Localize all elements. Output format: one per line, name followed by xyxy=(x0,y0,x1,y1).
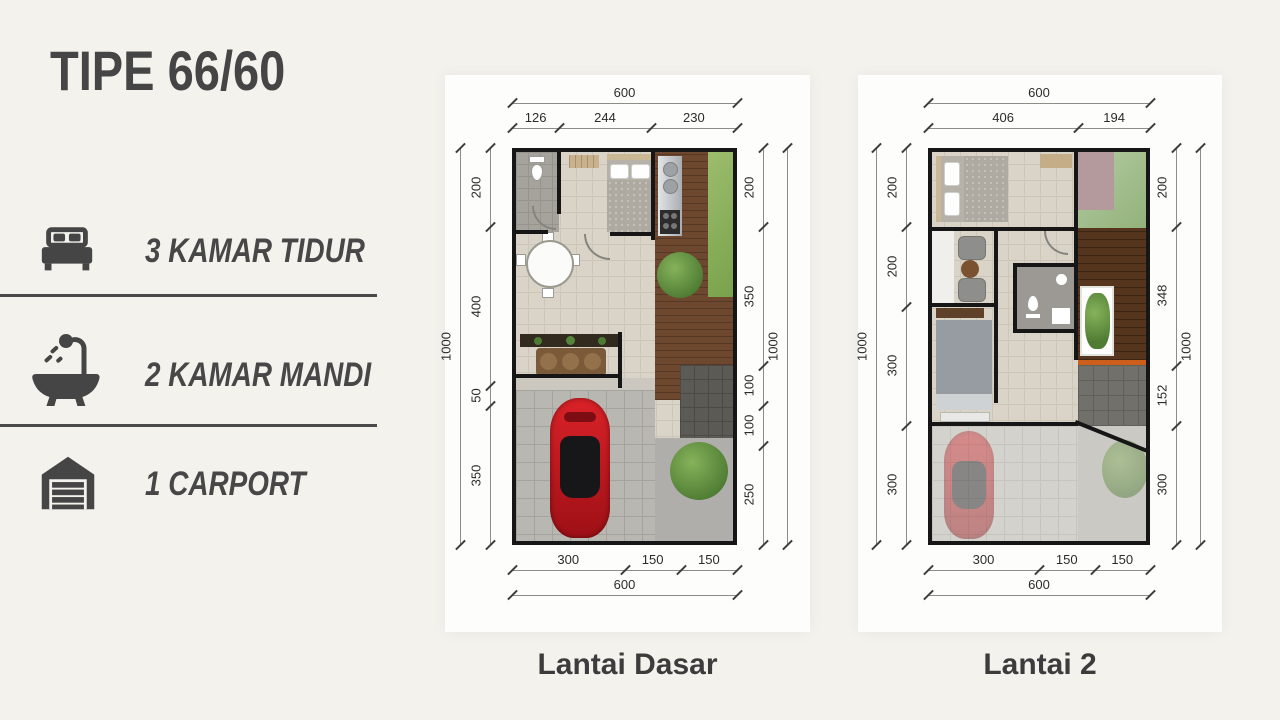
dimension-line xyxy=(876,148,877,545)
feature-bedrooms: 3 KAMAR TIDUR xyxy=(0,216,400,286)
dimension-label: 200 xyxy=(884,237,901,297)
dimension-line xyxy=(512,128,737,129)
dimension-label: 150 xyxy=(679,551,739,568)
dimension-label: 244 xyxy=(575,109,635,126)
dimension-label: 230 xyxy=(664,109,724,126)
outer-wall xyxy=(928,148,1150,545)
dimension-label: 300 xyxy=(884,336,901,396)
dimension-label: 300 xyxy=(884,455,901,515)
divider xyxy=(0,424,377,427)
dimension-label: 126 xyxy=(506,109,566,126)
dimension-line xyxy=(490,148,491,545)
dimension-label: 1000 xyxy=(854,316,871,376)
feature-bedrooms-label: 3 KAMAR TIDUR xyxy=(145,216,365,286)
dimension-label: 1000 xyxy=(765,316,782,376)
floor-plan-card-upper: 6004061941000200200300300200348152300100… xyxy=(858,75,1222,632)
dimension-line xyxy=(512,595,737,596)
dimension-label: 400 xyxy=(468,276,485,336)
dimension-label: 200 xyxy=(884,157,901,217)
dimension-label: 300 xyxy=(1154,455,1171,515)
dimension-label: 150 xyxy=(1092,551,1152,568)
bathtub-icon xyxy=(26,328,108,414)
floor-plan-card-ground: 6001262442301000200400503502003501001002… xyxy=(445,75,810,632)
floor-plan-drawing-upper xyxy=(928,148,1150,545)
feature-bathrooms-label: 2 KAMAR MANDI xyxy=(145,336,371,414)
floor-plan-drawing-ground xyxy=(512,148,737,545)
dimension-label: 600 xyxy=(595,576,655,593)
dimension-line xyxy=(787,148,788,545)
divider xyxy=(0,294,377,297)
dimension-label: 150 xyxy=(623,551,683,568)
dimension-label: 600 xyxy=(1009,576,1069,593)
dimension-label: 152 xyxy=(1154,365,1171,425)
dimension-label: 350 xyxy=(741,266,758,326)
dimension-line xyxy=(928,103,1150,104)
dimension-label: 348 xyxy=(1154,266,1171,326)
dimension-line xyxy=(928,595,1150,596)
dimension-label: 300 xyxy=(954,551,1014,568)
dimension-line xyxy=(512,103,737,104)
dimension-label: 1000 xyxy=(438,316,455,376)
dimension-line xyxy=(460,148,461,545)
dimension-label: 250 xyxy=(741,465,758,525)
dimension-label: 200 xyxy=(741,157,758,217)
dimension-label: 200 xyxy=(468,157,485,217)
dimension-label: 1000 xyxy=(1178,316,1195,376)
feature-carport-label: 1 CARPORT xyxy=(145,448,306,520)
feature-bathrooms: 2 KAMAR MANDI xyxy=(0,336,400,414)
dimension-label: 100 xyxy=(741,395,758,455)
dimension-label: 600 xyxy=(1009,84,1069,101)
outer-wall xyxy=(512,148,737,545)
dimension-label: 406 xyxy=(973,109,1033,126)
dimension-label: 194 xyxy=(1084,109,1144,126)
dimension-label: 200 xyxy=(1154,157,1171,217)
dimension-line xyxy=(1200,148,1201,545)
dimension-label: 50 xyxy=(468,366,485,426)
dimension-label: 350 xyxy=(468,445,485,505)
page-title: TIPE 66/60 xyxy=(50,38,285,103)
dimension-label: 600 xyxy=(595,84,655,101)
plan-label-upper: Lantai 2 xyxy=(858,648,1222,682)
feature-carport: 1 CARPORT xyxy=(0,448,400,520)
dimension-line xyxy=(928,128,1150,129)
plan-label-ground: Lantai Dasar xyxy=(445,648,810,682)
dimension-line xyxy=(906,148,907,545)
bed-icon xyxy=(36,226,98,276)
dimension-label: 150 xyxy=(1037,551,1097,568)
garage-icon xyxy=(38,452,98,514)
dimension-label: 300 xyxy=(538,551,598,568)
